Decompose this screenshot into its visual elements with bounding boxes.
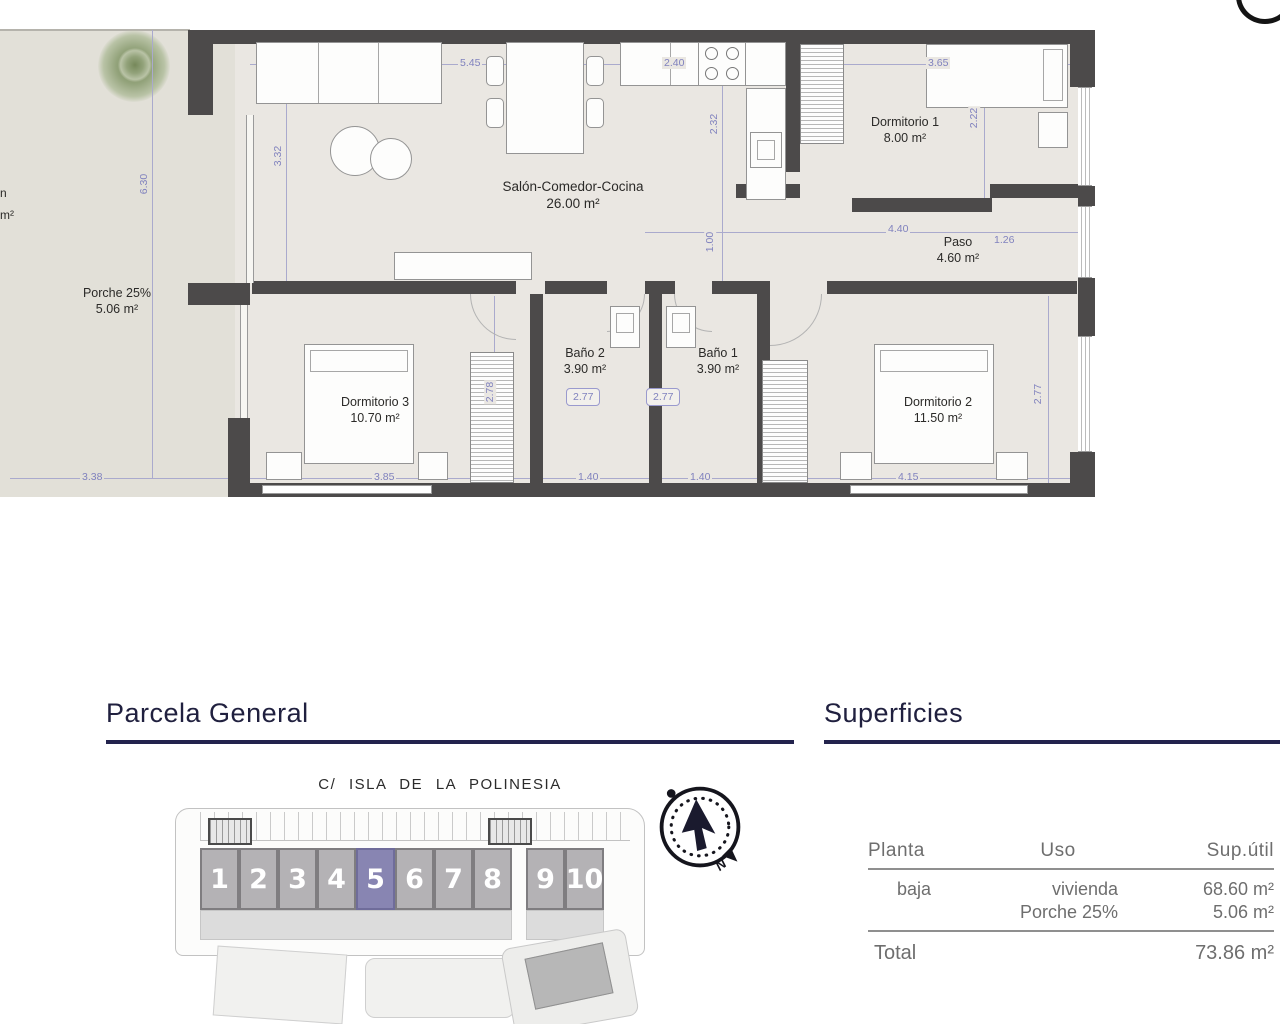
wall-segment (228, 418, 250, 483)
wardrobe (800, 44, 844, 144)
cell-uso: vivienda Porche 25% (960, 878, 1156, 924)
terrace-top-line (0, 29, 190, 31)
sideboard (394, 252, 532, 280)
dim-label: 3.38 (80, 471, 104, 483)
wall-segment (852, 198, 992, 212)
unit-1: 1 (200, 848, 239, 910)
dim-line (1048, 296, 1049, 483)
floor-plan: 5.45 2.40 3.65 2.32 2.22 3.32 6.30 4.40 … (0, 0, 1280, 690)
terrace-strip (200, 910, 512, 940)
unit-8: 8 (473, 848, 512, 910)
dim-label: 3.85 (372, 471, 396, 483)
wardrobe (762, 360, 808, 483)
cell-sup: 68.60 m² 5.06 m² (1156, 878, 1274, 924)
dim-label: 1.40 (576, 471, 600, 483)
wall-segment (188, 283, 250, 305)
unit-9: 9 (526, 848, 565, 910)
superficies-rule (824, 740, 1280, 744)
nightstand (266, 452, 302, 480)
bed-dormitorio1 (926, 44, 1068, 108)
clipped-label-fragment: n (0, 186, 7, 200)
room-label-bano2: Baño 23.90 m² (545, 345, 625, 377)
room-label-bano1: Baño 13.90 m² (678, 345, 758, 377)
street-label: C/ ISLA DE LA POLINESIA (270, 776, 610, 793)
palm-tree-core-icon (118, 48, 152, 82)
unit-5-highlighted: 5 (356, 848, 395, 910)
dim-label: 6.30 (138, 172, 150, 196)
dim-label: 5.45 (458, 57, 482, 69)
col-planta: Planta (868, 840, 960, 862)
garden-shape (213, 946, 348, 1024)
dim-label: 2.77 (1032, 382, 1044, 406)
parking-row (200, 812, 630, 841)
dining-table (506, 42, 584, 154)
wall-segment (990, 184, 1078, 198)
wall-segment (188, 30, 213, 115)
total-value: 73.86 m² (1034, 942, 1274, 965)
chair (486, 98, 504, 128)
site-plan: 1 2 3 4 5 6 7 8 9 10 (155, 798, 655, 1024)
window (1078, 87, 1092, 186)
table-rule (868, 930, 1274, 932)
clipped-shape (1236, 0, 1280, 24)
sofa (256, 42, 442, 104)
wall-segment (545, 281, 607, 294)
nightstand (1038, 112, 1068, 148)
chair (586, 56, 604, 86)
dim-label: 3.32 (272, 144, 284, 168)
dim-label-boxed: 2.77 (646, 388, 680, 406)
chair (586, 98, 604, 128)
chair (486, 56, 504, 86)
room-label-porche: Porche 25%5.06 m² (58, 285, 176, 317)
table-total-row: Total 73.86 m² (868, 942, 1274, 965)
stair-block (488, 818, 532, 845)
compass-dot-icon (667, 789, 676, 798)
wall-segment (1078, 186, 1095, 206)
stove (698, 42, 746, 86)
dim-label: 1.00 (704, 230, 716, 254)
dim-label: 3.65 (926, 57, 950, 69)
wall-segment (645, 281, 675, 294)
compass: N (650, 780, 750, 876)
sink (750, 132, 782, 168)
room-label-dormitorio2: Dormitorio 211.50 m² (878, 394, 998, 426)
dim-label: 2.78 (484, 380, 496, 404)
dim-label: 2.40 (662, 57, 686, 69)
wall-segment (1070, 30, 1095, 87)
coffee-table (370, 138, 412, 180)
room-label-dormitorio3: Dormitorio 310.70 m² (315, 394, 435, 426)
terrace-glass-window (240, 305, 248, 418)
toilet (610, 306, 640, 348)
unit-10: 10 (565, 848, 604, 910)
dim-label-boxed: 2.77 (566, 388, 600, 406)
nightstand (996, 452, 1028, 480)
north-arrow-icon (682, 799, 716, 851)
table-rule (868, 868, 1274, 870)
dim-label: 1.40 (688, 471, 712, 483)
sup-vivienda: 68.60 m² (1203, 879, 1274, 899)
unit-4: 4 (317, 848, 356, 910)
dim-line (722, 64, 723, 283)
superficies-table: Planta Uso Sup.útil baja vivienda Porche… (868, 840, 1274, 965)
dim-label: 2.22 (968, 106, 980, 130)
nightstand (840, 452, 872, 480)
unit-7: 7 (434, 848, 473, 910)
table-header-row: Planta Uso Sup.útil (868, 840, 1274, 862)
cell-planta: baja (868, 878, 960, 901)
parcela-title: Parcela General (106, 698, 309, 729)
uso-vivienda: vivienda (1052, 879, 1118, 899)
garden-shape (365, 958, 515, 1018)
wardrobe (470, 352, 514, 483)
window (1078, 206, 1092, 278)
terrace-glass-door (246, 115, 254, 283)
stair-block (208, 818, 252, 845)
table-body-row: baja vivienda Porche 25% 68.60 m² 5.06 m… (868, 878, 1274, 924)
room-label-dormitorio1: Dormitorio 18.00 m² (845, 114, 965, 146)
total-label: Total (868, 942, 1034, 965)
sup-porche: 5.06 m² (1213, 902, 1274, 922)
room-label-salon: Salón-Comedor-Cocina26.00 m² (463, 178, 683, 212)
col-uso: Uso (960, 840, 1156, 862)
plan-sheet: 5.45 2.40 3.65 2.32 2.22 3.32 6.30 4.40 … (0, 0, 1280, 1024)
superficies-title: Superficies (824, 698, 963, 729)
unit-2: 2 (239, 848, 278, 910)
wall-segment (712, 281, 770, 294)
dim-label: 2.32 (708, 112, 720, 136)
parcela-rule (106, 740, 794, 744)
clipped-label-fragment: m² (0, 208, 14, 222)
unit-3: 3 (278, 848, 317, 910)
wall-segment (252, 281, 516, 294)
dim-line (152, 30, 153, 478)
col-sup-util: Sup.útil (1156, 840, 1274, 862)
window (850, 485, 1028, 494)
toilet (666, 306, 696, 348)
window (262, 485, 432, 494)
wall-segment (530, 294, 543, 483)
compass-pointer-icon (722, 847, 737, 861)
window (1078, 336, 1092, 452)
wall-segment (786, 44, 800, 172)
wall-segment (827, 281, 1077, 294)
uso-porche: Porche 25% (1020, 902, 1118, 922)
dim-label: 4.15 (896, 471, 920, 483)
wall-segment (1078, 278, 1095, 336)
compass-north-label: N (712, 856, 729, 874)
nightstand (418, 452, 448, 480)
unit-6: 6 (395, 848, 434, 910)
room-label-paso: Paso4.60 m² (898, 234, 1018, 266)
